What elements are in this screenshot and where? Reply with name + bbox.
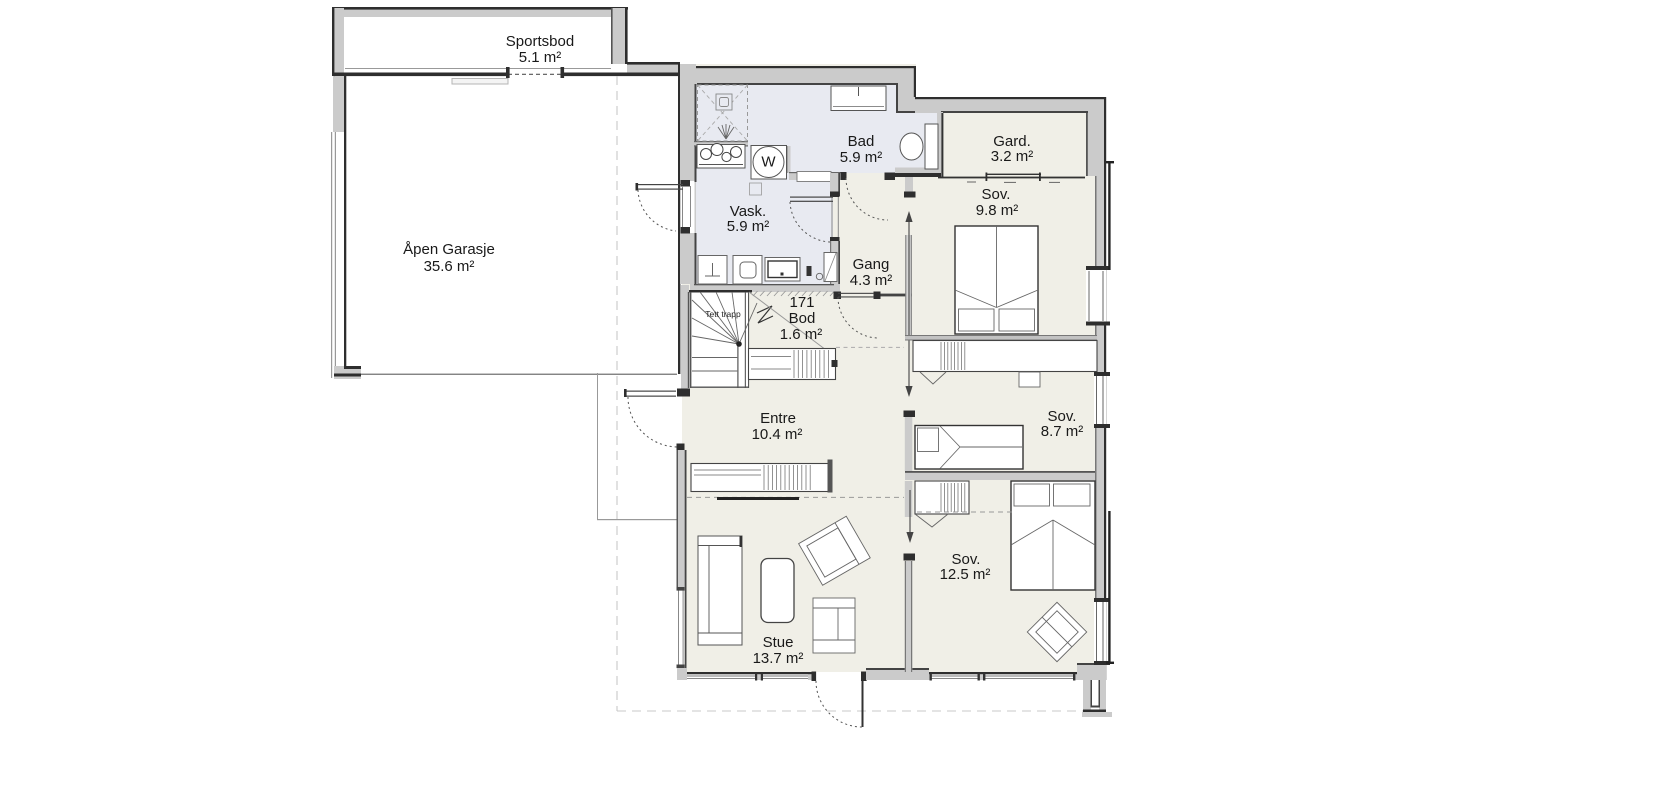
svg-text:Åpen Garasje: Åpen Garasje bbox=[403, 241, 495, 258]
svg-text:5.9 m²: 5.9 m² bbox=[727, 218, 770, 235]
svg-text:Stue: Stue bbox=[763, 634, 794, 651]
svg-text:35.6 m²: 35.6 m² bbox=[424, 258, 475, 275]
svg-text:9.8 m²: 9.8 m² bbox=[976, 202, 1019, 219]
svg-text:Sportsbod: Sportsbod bbox=[506, 33, 574, 50]
svg-text:5.1 m²: 5.1 m² bbox=[519, 49, 562, 66]
svg-text:Bad: Bad bbox=[848, 133, 875, 150]
svg-text:Tett trapp: Tett trapp bbox=[705, 309, 741, 319]
svg-text:13.7 m²: 13.7 m² bbox=[753, 650, 804, 667]
svg-text:4.3 m²: 4.3 m² bbox=[850, 272, 893, 289]
svg-text:W: W bbox=[761, 154, 776, 171]
svg-text:Gang: Gang bbox=[853, 256, 890, 273]
svg-text:10.4 m²: 10.4 m² bbox=[752, 426, 803, 443]
svg-text:Entre: Entre bbox=[760, 410, 796, 427]
svg-text:5.9 m²: 5.9 m² bbox=[840, 149, 883, 166]
svg-text:Bod: Bod bbox=[789, 310, 816, 327]
svg-text:Sov.: Sov. bbox=[982, 186, 1011, 203]
svg-text:3.2 m²: 3.2 m² bbox=[991, 148, 1034, 165]
svg-text:12.5 m²: 12.5 m² bbox=[940, 566, 991, 583]
svg-text:8.7 m²: 8.7 m² bbox=[1041, 423, 1084, 440]
svg-text:1.6 m²: 1.6 m² bbox=[780, 326, 823, 343]
svg-text:171: 171 bbox=[789, 294, 814, 311]
